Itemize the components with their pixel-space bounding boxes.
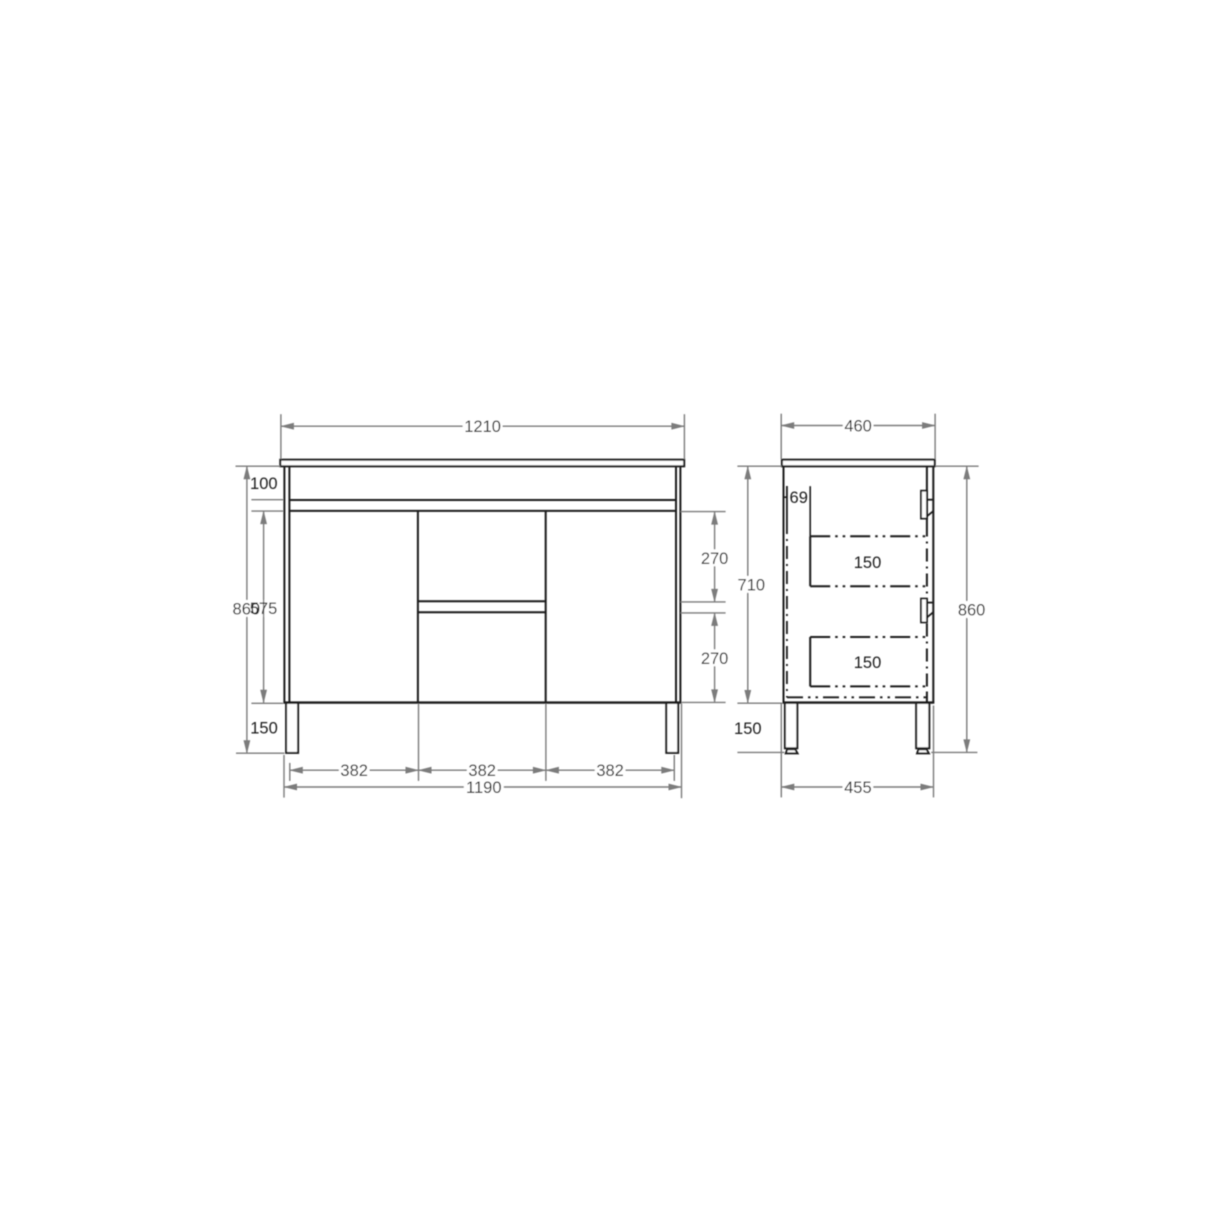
svg-text:460: 460: [844, 418, 872, 436]
svg-text:382: 382: [340, 762, 368, 780]
svg-text:860: 860: [958, 602, 986, 620]
svg-text:270: 270: [701, 650, 729, 668]
svg-text:382: 382: [468, 762, 496, 780]
svg-text:69: 69: [790, 489, 808, 507]
svg-text:575: 575: [250, 600, 278, 618]
svg-text:150: 150: [250, 719, 278, 737]
svg-text:150: 150: [854, 554, 882, 572]
svg-text:270: 270: [701, 550, 729, 568]
svg-text:710: 710: [738, 576, 766, 594]
svg-text:1210: 1210: [464, 418, 501, 436]
svg-text:150: 150: [854, 654, 882, 672]
svg-text:150: 150: [734, 720, 762, 738]
svg-text:382: 382: [596, 762, 624, 780]
svg-text:1190: 1190: [466, 779, 501, 797]
svg-text:100: 100: [250, 475, 278, 493]
svg-text:455: 455: [844, 779, 872, 797]
